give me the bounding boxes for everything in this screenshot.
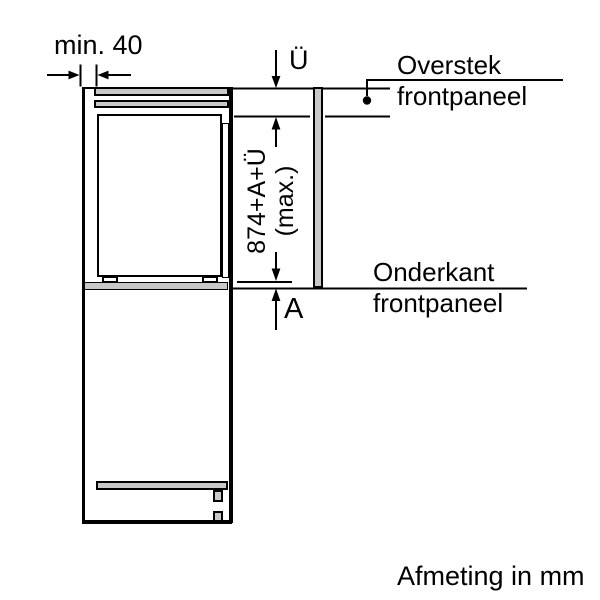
plinth-rail	[96, 481, 228, 490]
installation-diagram: min. 40 Ü Overstek frontpaneel 874+A+Ü (…	[0, 0, 600, 600]
plinth-bracket-lower	[213, 511, 223, 522]
cabinet-right-wall	[229, 87, 233, 523]
top-filler-bar-upper	[94, 87, 229, 96]
height-formula-line1: 874+A+Ü	[243, 136, 271, 266]
height-arrow-down-head	[272, 269, 281, 282]
overstek-label-line1: Overstek	[397, 52, 501, 79]
panel-extension-arrow-head	[272, 289, 281, 302]
height-arrow-up-head	[272, 117, 281, 130]
overhang-arrow-head	[272, 76, 281, 88]
height-formula-label: 874+A+Ü (max.)	[243, 136, 299, 266]
onderkant-label-line1: Onderkant	[373, 259, 494, 286]
plinth-bracket-upper	[213, 490, 223, 502]
height-formula-line2: (max.)	[271, 136, 299, 266]
cabinet-left-wall	[82, 87, 85, 523]
min-gap-label: min. 40	[54, 31, 143, 59]
top-filler-bar-lower	[94, 100, 229, 108]
cabinet-bottom-edge	[82, 520, 232, 524]
units-footer-label: Afmeting in mm	[397, 562, 585, 590]
appliance-body	[97, 114, 222, 277]
min40-arrow-left-head	[98, 71, 109, 80]
bottom-support-rail	[84, 282, 228, 290]
overstek-leader-dot	[363, 96, 371, 104]
min40-arrow-right-head	[69, 71, 80, 80]
onderkant-label-line2: frontpaneel	[373, 290, 503, 317]
overstek-label-line2: frontpaneel	[397, 83, 527, 110]
appliance-door-hinge-strip	[222, 123, 229, 278]
front-panel	[313, 87, 323, 288]
panel-extension-label: A	[284, 294, 303, 324]
overhang-label: Ü	[289, 46, 309, 74]
